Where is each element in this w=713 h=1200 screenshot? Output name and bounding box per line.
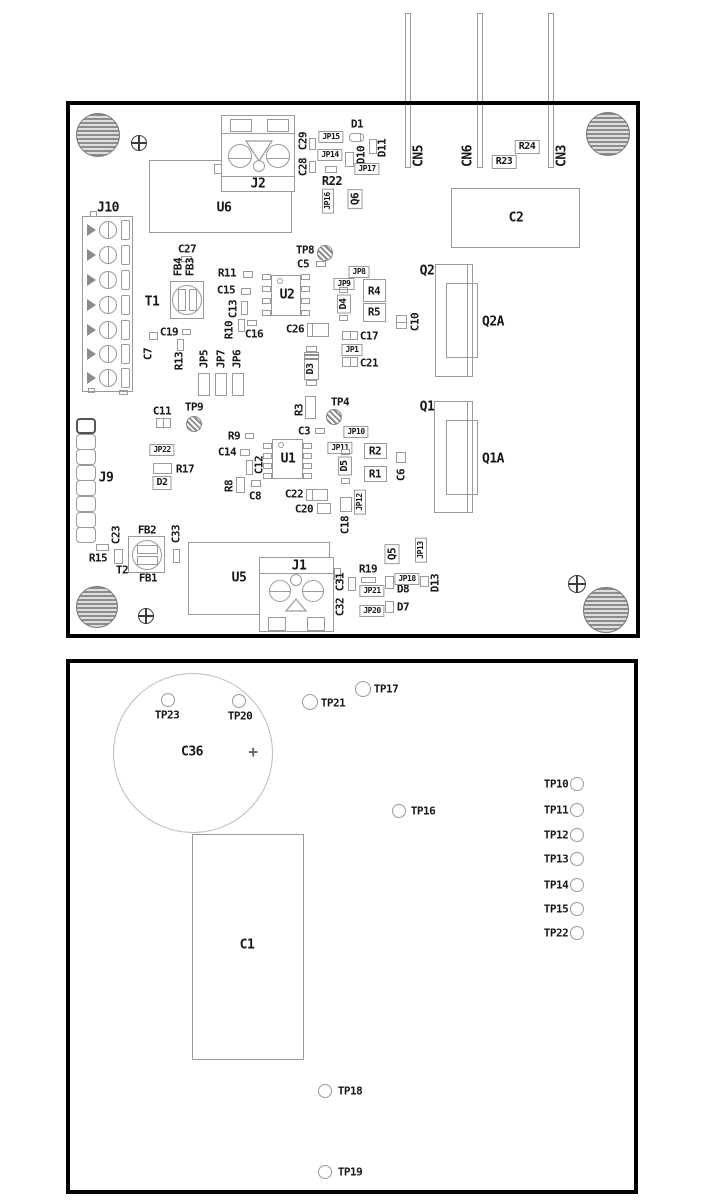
j10-pin-arrow xyxy=(87,324,96,336)
line xyxy=(269,591,291,592)
label-r2: R2 xyxy=(369,446,381,457)
j1-pad xyxy=(307,617,325,631)
label-tp18: TP18 xyxy=(338,1086,363,1097)
label-c13: C13 xyxy=(228,300,239,318)
line xyxy=(302,591,324,592)
label-tp9: TP9 xyxy=(185,402,203,413)
c14-body xyxy=(240,449,250,456)
r15-body xyxy=(96,544,109,551)
u2-pin xyxy=(301,298,310,304)
j1-center-hole xyxy=(290,574,302,586)
label-r24: R24 xyxy=(515,140,540,154)
c29-body xyxy=(309,138,316,150)
t1-winding xyxy=(189,289,197,311)
label-q5: Q5 xyxy=(385,544,400,564)
screw-mark-tl xyxy=(131,135,147,151)
label-jp17: JP17 xyxy=(354,163,379,175)
label-c17: C17 xyxy=(360,331,378,342)
j10-clamp xyxy=(121,270,130,290)
mount-hole-tl xyxy=(76,113,120,157)
c3-body xyxy=(315,428,325,434)
t1-core xyxy=(172,285,202,315)
j2-tab xyxy=(214,164,222,174)
c19-body xyxy=(182,329,191,335)
label-c33: C33 xyxy=(171,525,182,543)
j10-clamp xyxy=(121,245,130,265)
j9-pad xyxy=(76,449,96,465)
label-c1: C1 xyxy=(240,939,255,952)
tp8-testpoint xyxy=(317,245,333,261)
u1-pin xyxy=(263,473,272,479)
u1-pin xyxy=(303,463,312,469)
label-c2: C2 xyxy=(509,212,524,225)
jp5-body xyxy=(198,373,210,396)
u2-pin xyxy=(262,310,271,316)
label-d8: D8 xyxy=(397,584,409,595)
j10-screw xyxy=(99,321,117,339)
label-u5: U5 xyxy=(232,572,247,585)
label-r11: R11 xyxy=(218,268,236,279)
label-cn5: CN5 xyxy=(413,145,426,167)
label-d3: D3 xyxy=(306,363,316,374)
t2-winding xyxy=(137,556,158,565)
label-c11: C11 xyxy=(153,406,171,417)
j9-pad xyxy=(76,496,96,512)
label-d10: D10 xyxy=(356,146,367,164)
t2-winding xyxy=(137,545,158,554)
j1-pad xyxy=(268,617,286,631)
label-jp1: JP1 xyxy=(342,344,363,356)
label-c23: C23 xyxy=(111,526,122,544)
tp22-testpoint xyxy=(570,926,584,940)
j10-pin-arrow xyxy=(87,372,96,384)
label-tp23: TP23 xyxy=(155,710,180,721)
label-tp8: TP8 xyxy=(296,245,314,256)
u1-pin xyxy=(263,443,272,449)
label-d5: D5 xyxy=(338,456,352,475)
label-c21: C21 xyxy=(360,358,378,369)
tp15-testpoint xyxy=(570,902,584,916)
j10-pin-arrow xyxy=(87,249,96,261)
j10-pad xyxy=(90,211,97,217)
label-c32: C32 xyxy=(335,598,346,616)
j1-polarity-mark xyxy=(285,597,307,611)
label-jp20: JP20 xyxy=(359,605,384,617)
j10-pin-arrow xyxy=(87,224,96,236)
label-r22: R22 xyxy=(322,175,342,187)
c12-body xyxy=(246,460,253,475)
label-d1: D1 xyxy=(351,119,363,130)
label-j10: J10 xyxy=(97,202,119,215)
label-c6: C6 xyxy=(396,469,407,481)
label-c26: C26 xyxy=(286,324,304,335)
label-r13: R13 xyxy=(174,352,185,370)
tp20-testpoint xyxy=(232,694,246,708)
d1-body xyxy=(349,133,364,142)
label-r15: R15 xyxy=(89,553,107,564)
j9-pad xyxy=(76,418,96,434)
line xyxy=(360,133,361,142)
d5-pad xyxy=(341,449,350,455)
u2-pin xyxy=(301,274,310,280)
tp18-testpoint xyxy=(318,1084,332,1098)
label-c19: C19 xyxy=(160,327,178,338)
d5-pad xyxy=(341,478,350,484)
j10-clamp xyxy=(121,368,130,388)
mount-hole-bl xyxy=(76,586,118,628)
u2-pin xyxy=(301,310,310,316)
label-fb3: FB3 xyxy=(185,258,196,276)
j10-screw xyxy=(99,296,117,314)
j9-pad xyxy=(76,480,96,496)
t1-winding xyxy=(178,289,186,311)
line xyxy=(304,358,319,360)
c33-body xyxy=(173,549,180,563)
tp14-testpoint xyxy=(570,878,584,892)
label-tp17: TP17 xyxy=(374,684,399,695)
c36-plus-mark: + xyxy=(248,744,257,760)
label-jp10: JP10 xyxy=(343,426,368,438)
label-c31: C31 xyxy=(335,573,346,591)
q2a-pad xyxy=(446,283,478,358)
screw-mark-bl xyxy=(138,608,154,624)
label-fb4: FB4 xyxy=(173,258,184,276)
jp7-body xyxy=(215,373,227,396)
label-r1: R1 xyxy=(369,469,381,480)
label-d7: D7 xyxy=(397,602,409,613)
label-c7: C7 xyxy=(143,348,154,360)
label-c28: C28 xyxy=(298,158,309,176)
j10-clamp xyxy=(121,220,130,240)
label-t2: T2 xyxy=(116,565,128,576)
u1-pin xyxy=(303,473,312,479)
j10-screw xyxy=(99,221,117,239)
r9-body xyxy=(245,433,254,439)
tp9-testpoint xyxy=(186,416,202,432)
label-r10: R10 xyxy=(224,321,235,339)
label-u2: U2 xyxy=(280,289,295,302)
label-j1: J1 xyxy=(292,560,307,573)
j10-screw xyxy=(99,345,117,363)
label-c36: C36 xyxy=(181,746,203,759)
j2-center-hole xyxy=(253,160,265,172)
mount-hole-br xyxy=(583,587,629,633)
label-r9: R9 xyxy=(228,431,240,442)
j10-clamp xyxy=(121,320,130,340)
line xyxy=(221,133,295,134)
u1-pin xyxy=(263,463,272,469)
line xyxy=(304,354,319,356)
j10-pin-arrow xyxy=(87,348,96,360)
r19-body xyxy=(361,577,376,583)
j9-pad xyxy=(76,527,96,543)
j10-clamp xyxy=(121,295,130,315)
label-jp15: JP15 xyxy=(318,131,343,143)
line xyxy=(163,418,164,428)
label-r3: R3 xyxy=(294,404,305,416)
c18-body xyxy=(340,497,352,512)
label-u1: U1 xyxy=(281,453,296,466)
j9-pad xyxy=(76,434,96,450)
label-tp12: TP12 xyxy=(544,830,569,841)
label-tp14: TP14 xyxy=(544,880,569,891)
j2-pad xyxy=(230,119,252,132)
label-tp4: TP4 xyxy=(331,397,349,408)
label-tp10: TP10 xyxy=(544,779,569,790)
label-tp19: TP19 xyxy=(338,1167,363,1178)
label-c18: C18 xyxy=(340,516,351,534)
j10-screw xyxy=(99,246,117,264)
mount-hole-tr xyxy=(586,112,630,156)
label-jp6: JP6 xyxy=(232,350,243,368)
c7-body xyxy=(149,332,158,340)
label-jp18: JP18 xyxy=(394,573,419,585)
j10-pad xyxy=(119,390,128,395)
label-d11: D11 xyxy=(377,139,388,157)
label-c8: C8 xyxy=(249,491,261,502)
c20-body xyxy=(317,503,331,514)
line xyxy=(350,331,351,340)
c13-body xyxy=(241,301,248,315)
label-cn3: CN3 xyxy=(556,145,569,167)
j10-screw xyxy=(99,369,117,387)
label-tp15: TP15 xyxy=(544,904,569,915)
c26-body xyxy=(307,323,329,337)
label-r4: R4 xyxy=(368,286,380,297)
j2-polarity-mark xyxy=(245,140,273,162)
j10-pad xyxy=(88,388,95,393)
label-jp22: JP22 xyxy=(149,444,174,456)
u2-pin1-mark xyxy=(277,278,283,284)
label-tp22: TP22 xyxy=(544,928,569,939)
label-cn6: CN6 xyxy=(462,145,475,167)
label-tp21: TP21 xyxy=(321,698,346,709)
j10-pin-arrow xyxy=(87,274,96,286)
u2-pin xyxy=(262,286,271,292)
screw-mark-br xyxy=(568,575,586,593)
label-c15: C15 xyxy=(217,285,235,296)
u2-pin xyxy=(262,298,271,304)
c15-body xyxy=(241,288,251,295)
line xyxy=(312,489,313,501)
label-r8: R8 xyxy=(224,480,235,492)
r17-body xyxy=(153,463,172,474)
label-c14: C14 xyxy=(218,447,236,458)
d4-pad xyxy=(339,287,348,293)
c8-body xyxy=(251,480,261,487)
label-c29: C29 xyxy=(298,132,309,150)
d3-pad xyxy=(306,380,317,386)
label-fb1: FB1 xyxy=(139,573,157,584)
label-jp13: JP13 xyxy=(415,537,427,562)
r3-body xyxy=(305,396,316,419)
u1-pin xyxy=(303,453,312,459)
label-jp12: JP12 xyxy=(354,489,366,514)
label-q2a: Q2A xyxy=(482,316,504,329)
line xyxy=(350,357,351,367)
tp21-testpoint xyxy=(302,694,318,710)
label-c20: C20 xyxy=(295,504,313,515)
jp6-body xyxy=(232,373,244,396)
pcb-silkscreen-canvas: CN5CN6CN3R24R23C2U6J2D1D10D11JP15JP14JP1… xyxy=(0,0,713,1200)
tp16-testpoint xyxy=(392,804,406,818)
c23-body xyxy=(114,549,123,564)
label-d4: D4 xyxy=(337,294,351,313)
tp23-testpoint xyxy=(161,693,175,707)
line xyxy=(312,323,313,337)
label-c16: C16 xyxy=(245,329,263,340)
label-c5: C5 xyxy=(297,259,309,270)
label-r19: R19 xyxy=(359,564,377,575)
label-q1: Q1 xyxy=(420,401,435,414)
label-q1a: Q1A xyxy=(482,453,504,466)
label-fb2: FB2 xyxy=(138,525,156,536)
d10-body xyxy=(345,152,354,167)
tp19-testpoint xyxy=(318,1165,332,1179)
c31-body xyxy=(348,577,356,591)
tp13-testpoint xyxy=(570,852,584,866)
label-r23: R23 xyxy=(492,155,517,169)
c28-body xyxy=(309,161,316,173)
label-r5: R5 xyxy=(368,307,380,318)
label-tp13: TP13 xyxy=(544,854,569,865)
tp11-testpoint xyxy=(570,803,584,817)
r22-body xyxy=(325,166,337,173)
j10-clamp xyxy=(121,344,130,364)
q1a-pad xyxy=(446,420,478,495)
label-c3: C3 xyxy=(298,426,310,437)
j9-pad xyxy=(76,465,96,481)
label-tp16: TP16 xyxy=(411,806,436,817)
u2-pin xyxy=(301,286,310,292)
label-tp20: TP20 xyxy=(228,711,253,722)
label-j2: J2 xyxy=(251,178,266,191)
label-q6: Q6 xyxy=(348,189,363,209)
label-jp21: JP21 xyxy=(359,585,384,597)
r11-body xyxy=(243,271,253,278)
j9-pad xyxy=(76,512,96,528)
u1-pin1-mark xyxy=(278,442,284,448)
tp10-testpoint xyxy=(570,777,584,791)
d7-body xyxy=(385,601,394,613)
label-q2: Q2 xyxy=(420,265,435,278)
label-tp11: TP11 xyxy=(544,805,569,816)
c22-body xyxy=(306,489,328,501)
tp17-testpoint xyxy=(355,681,371,697)
label-jp16: JP16 xyxy=(322,188,334,213)
j10-pin-arrow xyxy=(87,299,96,311)
tp4-testpoint xyxy=(326,409,342,425)
c16-body xyxy=(247,320,257,326)
tp12-testpoint xyxy=(570,828,584,842)
label-c22: C22 xyxy=(285,489,303,500)
r8-body xyxy=(236,477,245,493)
label-jp5: JP5 xyxy=(199,350,210,368)
label-d2: D2 xyxy=(152,476,171,490)
u2-pin xyxy=(262,274,271,280)
label-t1: T1 xyxy=(145,296,160,309)
j10-screw xyxy=(99,271,117,289)
label-j9: J9 xyxy=(99,472,114,485)
label-c27: C27 xyxy=(178,244,196,255)
label-jp7: JP7 xyxy=(216,350,227,368)
j2-pad xyxy=(267,119,289,132)
d8-body xyxy=(385,576,394,589)
c6-body xyxy=(396,452,406,463)
label-jp8: JP8 xyxy=(349,266,370,278)
label-c10: C10 xyxy=(410,313,421,331)
u1-pin xyxy=(263,453,272,459)
label-r17: R17 xyxy=(176,464,194,475)
u1-pin xyxy=(303,443,312,449)
line xyxy=(396,322,407,323)
d4-pad xyxy=(339,315,348,321)
label-d13: D13 xyxy=(430,574,441,592)
label-u6: U6 xyxy=(217,202,232,215)
r13-body xyxy=(177,339,184,351)
c5-body xyxy=(316,261,326,267)
label-jp14: JP14 xyxy=(317,149,342,161)
